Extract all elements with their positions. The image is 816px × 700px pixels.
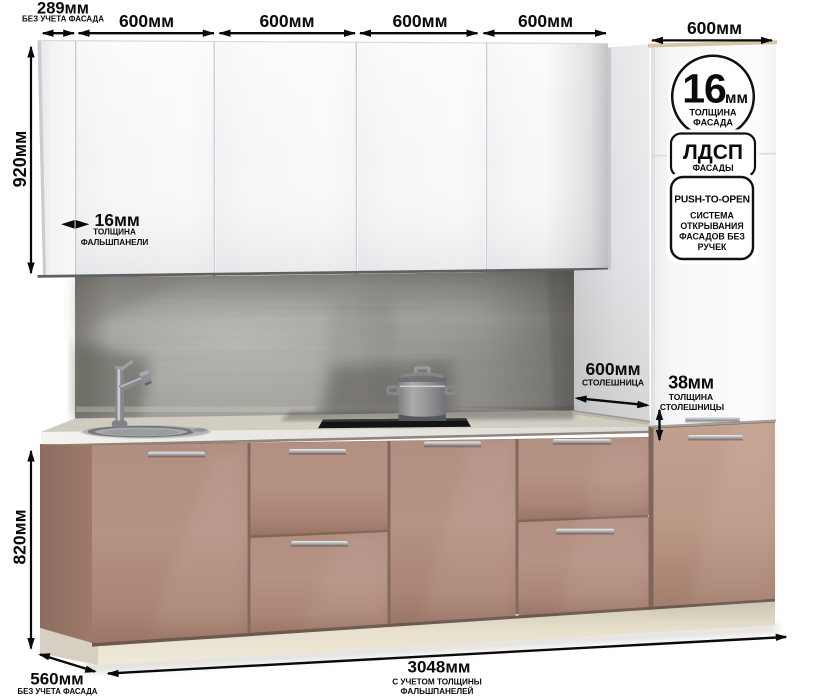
svg-text:СИСТЕМА: СИСТЕМА [690, 211, 734, 221]
svg-text:ОТКРЫВАНИЯ: ОТКРЫВАНИЯ [680, 221, 743, 231]
svg-text:С УЧЕТОМ ТОЛЩИНЫ: С УЧЕТОМ ТОЛЩИНЫ [392, 678, 482, 687]
svg-text:600мм: 600мм [585, 359, 640, 379]
svg-text:РУЧЕК: РУЧЕК [698, 242, 727, 252]
svg-text:ТОЛЩИНА: ТОЛЩИНА [93, 228, 136, 237]
svg-text:600мм: 600мм [687, 18, 742, 38]
svg-text:СТОЛЕШНИЦЫ: СТОЛЕШНИЦЫ [660, 402, 724, 412]
svg-text:560мм: 560мм [30, 670, 84, 689]
svg-text:PUSH-TO-OPEN: PUSH-TO-OPEN [674, 195, 750, 206]
svg-text:СТОЛЕШНИЦА: СТОЛЕШНИЦА [582, 378, 644, 388]
svg-text:820мм: 820мм [10, 509, 30, 564]
svg-text:38мм: 38мм [668, 373, 713, 393]
svg-text:ЛДСП: ЛДСП [683, 141, 743, 164]
svg-text:ТОЛЩИНА: ТОЛЩИНА [669, 392, 713, 402]
svg-text:мм: мм [725, 90, 748, 107]
svg-text:920мм: 920мм [10, 131, 30, 188]
svg-text:600мм: 600мм [392, 11, 447, 31]
svg-text:3048мм: 3048мм [408, 658, 471, 677]
svg-text:БЕЗ УЧЕТА ФАСАДА: БЕЗ УЧЕТА ФАСАДА [18, 687, 98, 696]
svg-text:ТОЛЩИНА: ТОЛЩИНА [689, 108, 737, 118]
svg-text:600мм: 600мм [259, 11, 314, 31]
svg-text:16: 16 [682, 66, 726, 112]
svg-text:ФАСАДОВ БЕЗ: ФАСАДОВ БЕЗ [679, 232, 745, 242]
svg-text:ФАСАДЫ: ФАСАДЫ [692, 163, 734, 173]
svg-text:ФАЛЬШПАНЕЛЕЙ: ФАЛЬШПАНЕЛЕЙ [401, 685, 474, 696]
svg-text:600мм: 600мм [518, 11, 573, 31]
svg-text:600мм: 600мм [119, 11, 174, 31]
svg-text:ФАСАДА: ФАСАДА [693, 118, 733, 128]
svg-text:ФАЛЬШПАНЕЛИ: ФАЛЬШПАНЕЛИ [81, 238, 149, 247]
svg-text:БЕЗ УЧЕТА ФАСАДА: БЕЗ УЧЕТА ФАСАДА [22, 15, 104, 24]
